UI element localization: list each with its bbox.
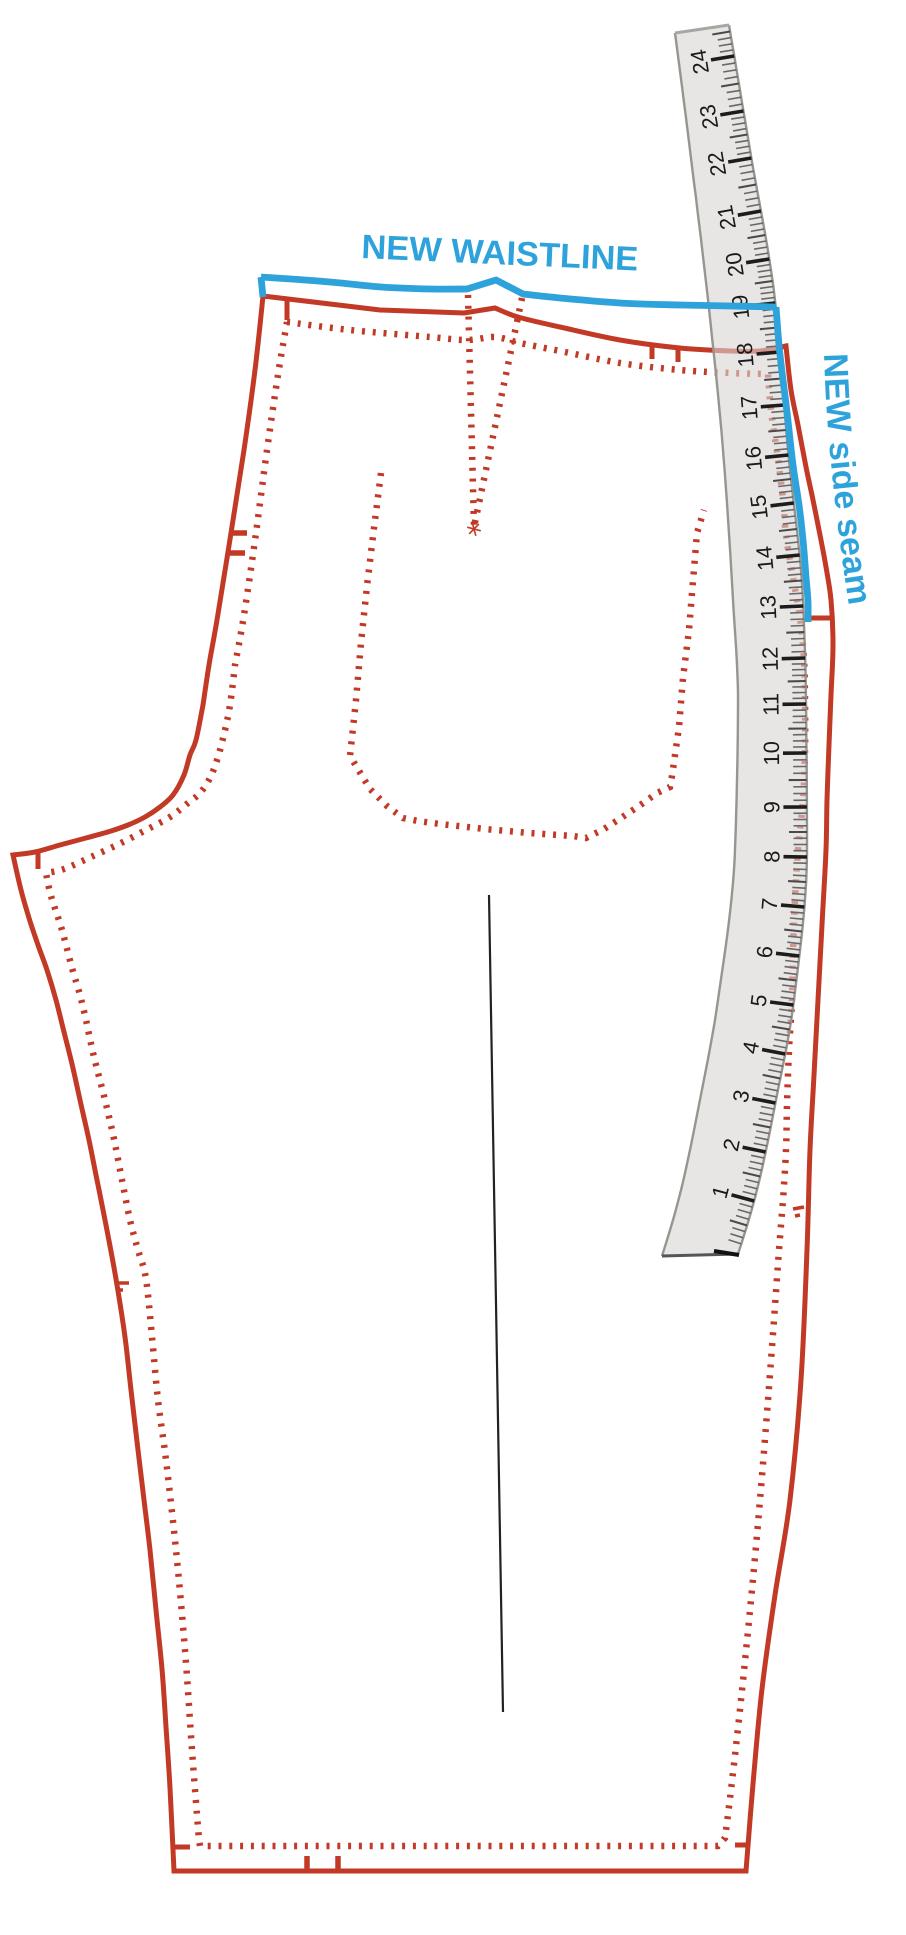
svg-text:22: 22 — [702, 150, 731, 178]
svg-text:16: 16 — [740, 445, 767, 472]
svg-text:7: 7 — [757, 897, 783, 911]
svg-text:21: 21 — [712, 203, 741, 232]
svg-text:18: 18 — [732, 342, 759, 368]
svg-text:20: 20 — [720, 250, 749, 278]
svg-text:9: 9 — [759, 801, 784, 813]
svg-text:10: 10 — [759, 741, 784, 766]
svg-text:23: 23 — [695, 103, 724, 131]
svg-text:8: 8 — [759, 850, 784, 863]
svg-text:12: 12 — [757, 646, 783, 671]
svg-text:13: 13 — [755, 595, 781, 621]
svg-text:17: 17 — [736, 395, 763, 421]
svg-text:11: 11 — [758, 693, 783, 716]
svg-text:14: 14 — [751, 545, 778, 572]
svg-text:24: 24 — [685, 48, 714, 76]
svg-text:15: 15 — [745, 493, 773, 520]
